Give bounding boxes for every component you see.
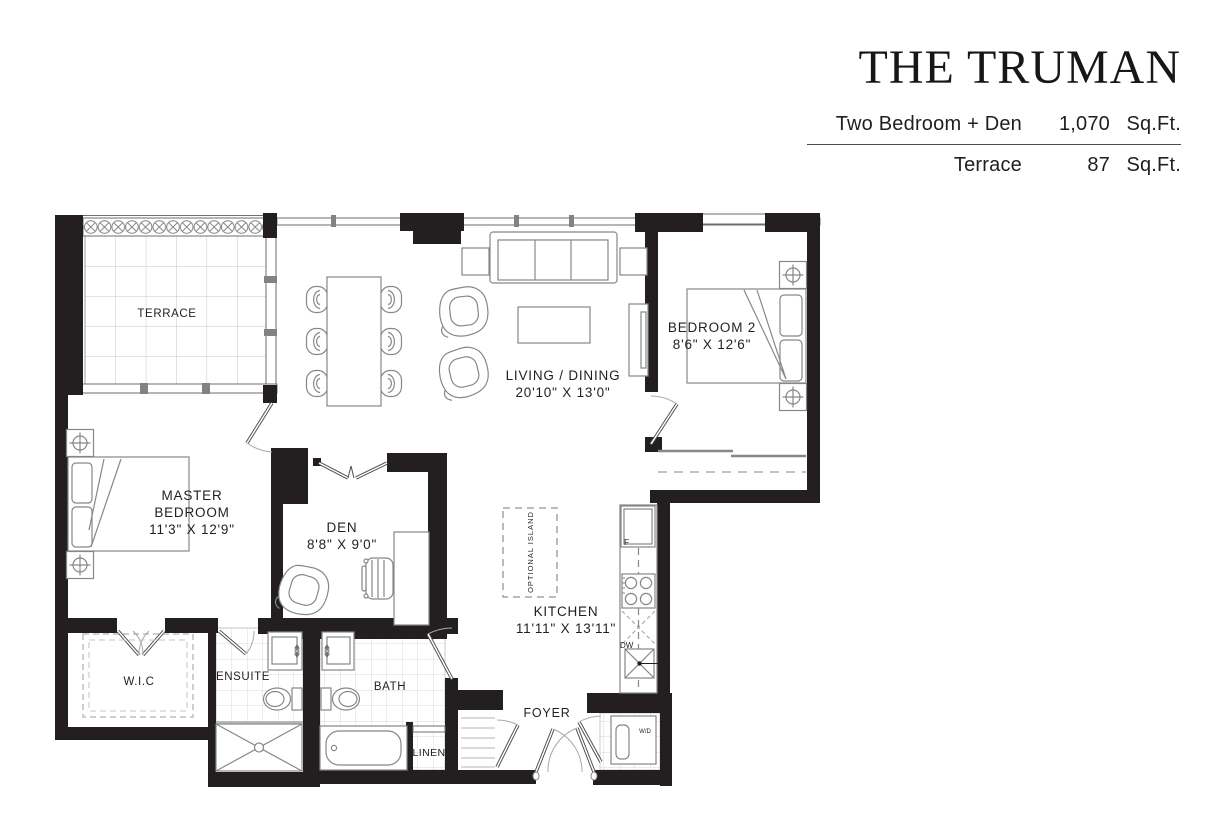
linen-label: LINEN xyxy=(413,747,446,759)
master-window xyxy=(68,384,277,393)
terrace-label: Terrace xyxy=(807,149,1022,181)
dishwasher-label: DW xyxy=(620,641,634,650)
washer-dryer-label: W/D xyxy=(639,729,651,735)
master-label-1: MASTER xyxy=(161,488,222,503)
kitchen-label: KITCHEN xyxy=(534,604,599,619)
living-dining-dims: 20'10" X 13'0" xyxy=(515,385,610,400)
linen-door xyxy=(413,726,445,732)
nightstand-lamp xyxy=(780,262,807,289)
den-label: DEN xyxy=(327,520,358,535)
shower xyxy=(216,724,302,771)
terrace-area-value: 87 xyxy=(1022,149,1110,181)
tv-console xyxy=(629,304,648,376)
stove xyxy=(622,574,655,608)
side-table-right xyxy=(620,248,647,275)
terrace-floor-tiles xyxy=(83,216,267,387)
ensuite-label: ENSUITE xyxy=(216,671,270,683)
bedroom2-window xyxy=(701,214,766,224)
suite-area-unit: Sq.Ft. xyxy=(1110,108,1181,140)
optional-island-label: OPTIONAL ISLAND xyxy=(526,511,535,593)
nightstand-lamp xyxy=(67,430,94,457)
kitchen-dims: 11'11" X 13'11" xyxy=(516,621,616,636)
desk xyxy=(394,532,429,625)
suite-area-value: 1,070 xyxy=(1022,108,1110,140)
floor-plan: TERRACE LIVING / DINING 20'10" X 13'0" B… xyxy=(55,195,845,810)
bedroom2-door xyxy=(651,396,677,444)
bedroom2-furniture xyxy=(687,262,807,411)
master-bedroom-door xyxy=(247,403,272,452)
wic-double-doors xyxy=(118,631,164,655)
nightstand-lamp xyxy=(67,552,94,579)
armchair-1 xyxy=(437,285,490,338)
terrace-railing xyxy=(83,218,265,236)
terrace-room-label: TERRACE xyxy=(137,308,196,320)
bathtub xyxy=(320,726,407,770)
bedroom2-label: BEDROOM 2 xyxy=(668,320,756,335)
bedroom2-dims: 8'6" X 12'6" xyxy=(673,337,751,352)
area-summary: Two Bedroom + Den 1,070 Sq.Ft. Terrace 8… xyxy=(807,108,1181,181)
washer-dryer xyxy=(611,716,656,764)
fridge-label: F xyxy=(624,537,629,547)
terrace-door-window xyxy=(266,237,276,389)
den-dims: 8'8" X 9'0" xyxy=(307,537,377,552)
wic-label: W.I.C xyxy=(123,676,154,688)
foyer-label: FOYER xyxy=(523,706,570,720)
master-label-2: BEDROOM xyxy=(154,505,229,520)
foyer-closet-door xyxy=(497,720,518,767)
master-dims: 11'3" X 12'9" xyxy=(149,522,235,537)
page-title: THE TRUMAN xyxy=(580,40,1181,95)
office-chair xyxy=(362,558,393,599)
dining-set xyxy=(307,277,402,406)
living-dining-label: LIVING / DINING xyxy=(506,368,621,383)
armchair-2 xyxy=(435,343,494,402)
ensuite-toilet xyxy=(264,688,303,710)
side-table-left xyxy=(462,248,489,275)
bedroom2-closet-sliders xyxy=(658,451,806,472)
foyer-closet-shelves xyxy=(461,718,495,767)
summary-divider xyxy=(807,144,1181,145)
summary-row-terrace: Terrace 87 Sq.Ft. xyxy=(807,149,1181,181)
floorplan-sheet: THE TRUMAN Two Bedroom + Den 1,070 Sq.Ft… xyxy=(0,0,1226,833)
coffee-table xyxy=(518,307,590,343)
terrace-area-unit: Sq.Ft. xyxy=(1110,149,1181,181)
nightstand-lamp xyxy=(780,384,807,411)
dining-table xyxy=(327,277,381,406)
master-bedroom-furniture xyxy=(67,430,190,579)
summary-row-suite: Two Bedroom + Den 1,070 Sq.Ft. xyxy=(807,108,1181,140)
bath-toilet xyxy=(321,688,360,710)
bath-label: BATH xyxy=(374,681,406,693)
suite-type-label: Two Bedroom + Den xyxy=(807,108,1022,140)
den-double-doors xyxy=(319,463,387,478)
